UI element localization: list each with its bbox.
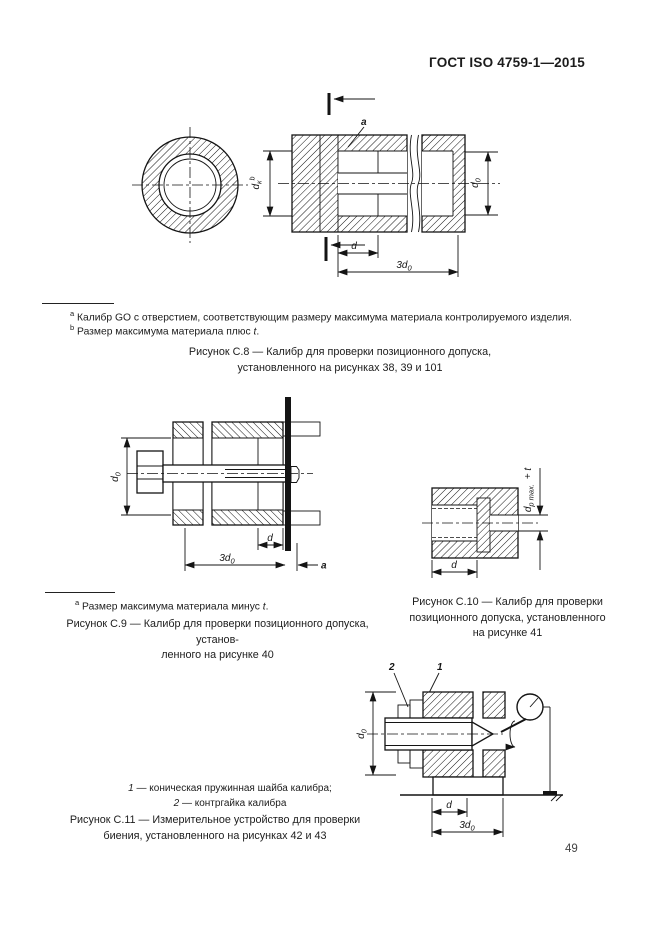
c11-dim-3d0: 3d0 xyxy=(432,798,503,837)
page-number: 49 xyxy=(565,843,578,855)
footnote-end: . xyxy=(266,601,269,612)
c11-dial-indicator xyxy=(501,694,543,732)
caption-line: Рисунок С.10 — Калибр для проверки xyxy=(390,595,625,611)
c9-gauge-plate xyxy=(285,397,299,551)
legend-item-text: — коническая пружинная шайба калибра; xyxy=(134,783,332,794)
legend-item: 1 — коническая пружинная шайба калибра; xyxy=(75,781,385,796)
svg-text:3d0: 3d0 xyxy=(459,820,475,833)
c8-footnote-b: b Размер максимума материала плюс t. xyxy=(70,321,610,339)
c10-dim-dpmax: dp max. + t xyxy=(518,467,548,570)
figure-c9-drawing: d0 d 3d0 a xyxy=(75,393,345,593)
figure-c8-caption: Рисунок С.8 — Калибр для проверки позици… xyxy=(140,345,540,376)
c10-dim-d: d xyxy=(432,560,477,578)
footnote-marker: b xyxy=(70,323,74,332)
footnote-text: Размер максимума материала плюс xyxy=(77,326,254,337)
c9-dim-a: a xyxy=(297,543,327,572)
caption-line: биения, установленного на рисунках 42 и … xyxy=(65,829,365,845)
c8-marker-a-label: a xyxy=(361,117,367,128)
c11-shaft xyxy=(367,718,503,750)
c9-dim-d: d xyxy=(258,528,283,550)
svg-text:d: d xyxy=(267,533,273,544)
caption-line: установленного на рисунках 38, 39 и 101 xyxy=(140,361,540,377)
figure-c11-caption: Рисунок С.11 — Измерительное устройство … xyxy=(65,813,365,844)
svg-text:d: d xyxy=(451,560,457,571)
svg-text:d0: d0 xyxy=(110,471,123,482)
svg-text:d0: d0 xyxy=(356,728,369,739)
footnote-marker: a xyxy=(75,598,79,607)
footnote-rule xyxy=(42,303,114,304)
c8-circular-view xyxy=(132,127,248,243)
c8-section-view xyxy=(278,135,500,232)
caption-line: Рисунок С.9 — Калибр для проверки позици… xyxy=(55,617,380,648)
caption-line: на рисунке 41 xyxy=(390,626,625,642)
svg-text:3d0: 3d0 xyxy=(219,553,235,566)
figure-c11-legend: 1 — коническая пружинная шайба калибра; … xyxy=(75,781,385,811)
c11-item1-label: 1 xyxy=(437,662,443,673)
document-header: ГОСТ ISO 4759-1—2015 xyxy=(335,55,585,70)
c10-block xyxy=(422,488,538,558)
figure-c10-caption: Рисунок С.10 — Калибр для проверки позиц… xyxy=(390,595,625,642)
footnote-rule xyxy=(45,592,115,593)
document-page: ГОСТ ISO 4759-1—2015 xyxy=(0,0,661,935)
c8-dim-d: d xyxy=(338,235,378,277)
c9-footnote-a: a Размер максимума материала минус t. xyxy=(75,596,375,614)
svg-text:d0: d0 xyxy=(470,177,483,188)
footnote-marker: a xyxy=(70,309,74,318)
svg-text:a: a xyxy=(321,561,327,572)
svg-text:3d0: 3d0 xyxy=(396,260,412,273)
footnote-end: . xyxy=(256,326,259,337)
caption-line: Рисунок С.8 — Калибр для проверки позици… xyxy=(140,345,540,361)
legend-item: 2 — контргайка калибра xyxy=(75,796,385,811)
caption-line: Рисунок С.11 — Измерительное устройство … xyxy=(65,813,365,829)
svg-text:dp max. + t: dp max. + t xyxy=(523,467,536,512)
figure-c10-drawing: dp max. + t d xyxy=(420,458,620,593)
c11-dim-d: d xyxy=(432,798,467,837)
figure-c8-drawing: a dкb d0 d xyxy=(120,85,520,295)
c11-item2-label: 2 xyxy=(388,662,395,673)
caption-line: позиционного допуска, установленного xyxy=(390,611,625,627)
footnote-text: Размер максимума материала минус xyxy=(82,601,263,612)
svg-text:d: d xyxy=(351,241,357,252)
legend-item-text: — контргайка калибра xyxy=(179,798,286,809)
svg-text:d: d xyxy=(446,800,452,811)
svg-text:dкb: dкb xyxy=(250,176,264,189)
